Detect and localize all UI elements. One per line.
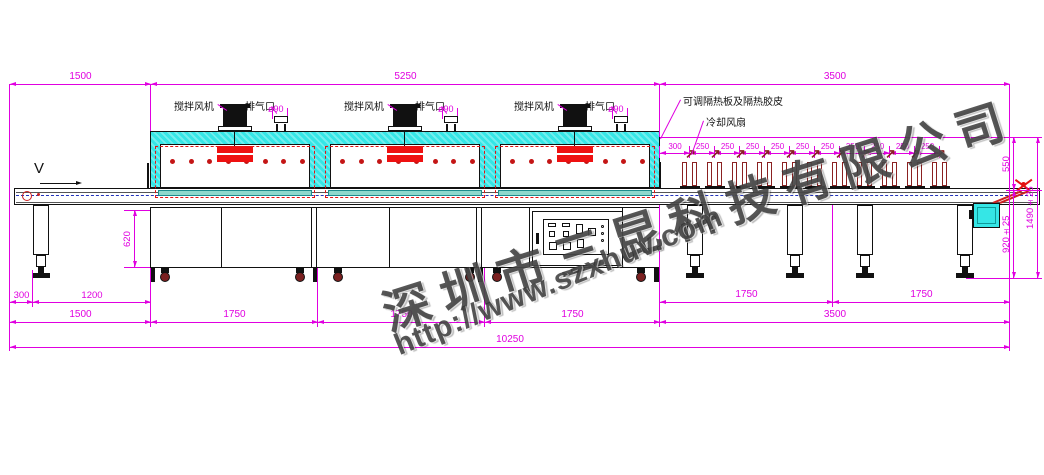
dim-line	[10, 84, 151, 85]
dim-label: 10250	[470, 334, 550, 345]
roller-mark-dot	[37, 193, 40, 196]
leader-line	[660, 100, 681, 139]
ir-lamp-dot	[377, 159, 382, 164]
heater-box	[557, 146, 593, 153]
ir-lamp-dot	[433, 159, 438, 164]
ir-lamp-dot	[340, 159, 345, 164]
exhaust-port-leg	[446, 124, 448, 131]
dim-line	[660, 302, 833, 303]
heater-box	[387, 146, 423, 153]
leg-foot-pad	[786, 273, 804, 278]
conveyor-inner-rail	[16, 202, 1038, 203]
dim-ext-line	[150, 268, 151, 327]
dim-arrow	[1036, 272, 1040, 278]
dim-arrow	[1012, 190, 1016, 196]
dim-line	[660, 322, 1010, 323]
ir-lamp-dot	[603, 159, 608, 164]
drive-motor-tab	[969, 210, 973, 219]
ir-lamp-dot	[170, 159, 175, 164]
caster-wheel	[160, 272, 170, 282]
cooling-fan-base	[930, 186, 950, 188]
ir-lamp-dot	[547, 159, 552, 164]
dim-label: 620	[121, 204, 134, 274]
dim-arrow	[151, 320, 157, 324]
dim-label: 1750	[533, 309, 613, 320]
belt-direction-label: V	[34, 160, 44, 177]
table-leg-lower	[790, 255, 800, 267]
ir-lamp-dot	[529, 159, 534, 164]
table-leg-upper	[857, 205, 873, 255]
dim-label: 5250	[366, 71, 446, 82]
dim-line	[660, 84, 1010, 85]
dim-ext-line	[832, 205, 833, 307]
dim-arrow	[318, 320, 324, 324]
ir-lamp-dot	[207, 159, 212, 164]
stir-fan-motor-base	[558, 126, 592, 131]
cooling-fan-airflow-arrow: ↗	[710, 146, 721, 162]
cabinet-section-divider	[311, 207, 312, 268]
stir-fan-motor-body	[223, 108, 247, 126]
dim-arrow	[660, 320, 666, 324]
dim-arrow	[145, 300, 151, 304]
leg-foot-pad	[32, 273, 50, 278]
ir-lamp-dot	[510, 159, 515, 164]
cabinet-door-divider	[389, 208, 390, 267]
dim-line	[33, 302, 151, 303]
dim-line	[485, 322, 660, 323]
dim-arrow	[660, 151, 666, 155]
dim-ext-line	[659, 84, 660, 137]
dim-line	[151, 322, 318, 323]
caster-wheel	[333, 272, 343, 282]
heater-box	[557, 155, 593, 162]
cabinet-section-divider	[316, 207, 317, 268]
heater-box	[217, 155, 253, 162]
exhaust-port	[274, 116, 288, 123]
cooling-fan-base	[905, 186, 925, 188]
table-leg-lower	[690, 255, 700, 267]
exhaust-diameter-label: ø90	[438, 104, 454, 114]
leg-foot-pad	[856, 273, 874, 278]
stir-fan-label: 搅拌风机	[344, 98, 384, 113]
dim-arrow	[660, 300, 666, 304]
exhaust-port	[614, 116, 628, 123]
tunnel-entry-post	[147, 163, 149, 188]
leg-foot-pad	[686, 273, 704, 278]
exhaust-diameter-label: ø90	[268, 104, 284, 114]
ir-lamp-dot	[300, 159, 305, 164]
dim-arrow	[1012, 272, 1016, 278]
dim-label: 1750	[707, 289, 787, 300]
dim-line	[10, 347, 1010, 348]
dim-label: 1750	[195, 309, 275, 320]
drive-motor-inner	[977, 207, 996, 224]
motor-shaft	[574, 131, 575, 146]
ir-lamp-dot	[359, 159, 364, 164]
dim-arrow	[1004, 300, 1010, 304]
dim-arrow	[1004, 82, 1010, 86]
insulation-note-label: 可调隔热板及隔热胶皮	[683, 93, 783, 108]
caster-wheel	[636, 272, 646, 282]
exhaust-diameter-label: ø90	[608, 104, 624, 114]
dim-arrow	[10, 82, 16, 86]
dim-label: 920±25	[1000, 199, 1013, 269]
belt-mesh-strip	[498, 190, 652, 196]
ir-lamp-dot	[189, 159, 194, 164]
stir-fan-motor-base	[388, 126, 422, 131]
stir-fan-motor-body	[393, 108, 417, 126]
dim-ext-line	[9, 84, 10, 351]
ir-lamp-dot	[281, 159, 286, 164]
dim-line	[10, 322, 151, 323]
dim-label: 3500	[795, 71, 875, 82]
direction-arrow-head	[76, 181, 82, 185]
dim-line	[833, 302, 1010, 303]
ir-lamp-dot	[263, 159, 268, 164]
ir-lamp-dot	[451, 159, 456, 164]
dim-arrow	[1036, 137, 1040, 143]
dim-label: 1490±25	[1024, 173, 1037, 243]
dim-ext-line	[150, 84, 151, 131]
end-roller	[22, 191, 32, 201]
motor-shaft	[234, 131, 235, 146]
dim-label: 3500	[795, 309, 875, 320]
dim-ext-line	[317, 268, 318, 327]
exhaust-port-leg	[276, 124, 278, 131]
exhaust-ext-line	[272, 108, 273, 119]
table-leg-lower	[860, 255, 870, 267]
ir-lamp-dot	[621, 159, 626, 164]
cabinet-door-divider	[221, 208, 222, 267]
heater-box	[387, 155, 423, 162]
exhaust-port-leg	[284, 124, 286, 131]
dim-arrow	[660, 82, 666, 86]
dim-arrow	[833, 300, 839, 304]
table-leg-lower	[36, 255, 46, 267]
exhaust-ext-line	[442, 108, 443, 119]
tunnel-exit-post	[659, 162, 661, 188]
dim-label: 1750	[882, 289, 962, 300]
dim-line	[134, 210, 135, 267]
exhaust-port-leg	[616, 124, 618, 131]
table-leg-upper	[33, 205, 49, 255]
direction-arrow-line	[40, 183, 76, 184]
dim-arrow	[151, 82, 157, 86]
belt-mesh-strip	[158, 190, 312, 196]
stir-fan-label: 搅拌风机	[174, 98, 214, 113]
cooling-fan-note-label: 冷却风扇	[706, 114, 746, 129]
motor-shaft	[404, 131, 405, 146]
belt-mesh-strip	[328, 190, 482, 196]
dim-arrow	[10, 320, 16, 324]
dim-line	[151, 84, 660, 85]
ir-lamp-dot	[640, 159, 645, 164]
dim-arrow	[10, 345, 16, 349]
dim-ext-line	[966, 278, 1042, 279]
ir-lamp-dot	[470, 159, 475, 164]
stir-fan-motor-body	[563, 108, 587, 126]
caster-wheel	[295, 272, 305, 282]
exhaust-port-leg	[454, 124, 456, 131]
dim-label: 1500	[41, 309, 121, 320]
dim-arrow	[33, 300, 39, 304]
dim-arrow	[1004, 320, 1010, 324]
stir-fan-motor-base	[218, 126, 252, 131]
exhaust-ext-line	[612, 108, 613, 119]
dim-label: 1500	[41, 71, 121, 82]
exhaust-port	[444, 116, 458, 123]
dim-line	[1013, 190, 1014, 278]
table-leg-lower	[960, 255, 970, 267]
exhaust-port-leg	[624, 124, 626, 131]
dim-line	[1037, 137, 1038, 278]
stir-fan-label: 搅拌风机	[514, 98, 554, 113]
heater-box	[217, 146, 253, 153]
dim-arrow	[1004, 345, 1010, 349]
dim-label: 1200	[52, 290, 132, 301]
engineering-drawing-canvas: V 可调隔热板及隔热胶皮 冷却风扇 深圳市三昆科技有限公司 http://www…	[0, 0, 1044, 475]
